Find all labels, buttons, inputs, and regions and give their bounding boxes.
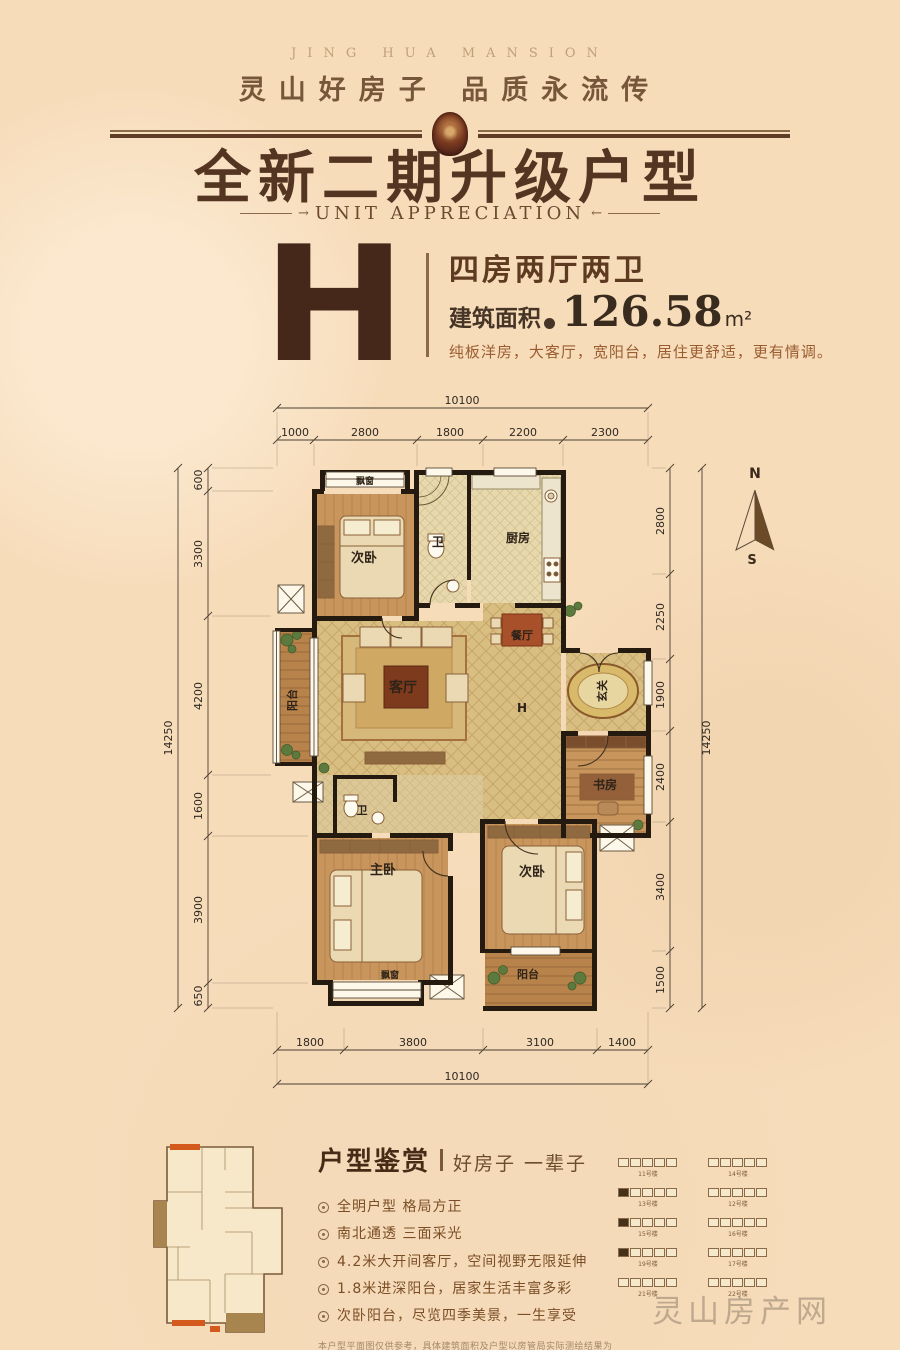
page-title: 全新二期升级户型 (0, 132, 900, 214)
label-bedroom-top: 次卧 (351, 550, 377, 566)
area-unit: m² (725, 307, 753, 331)
label-bay-bottom: 飘窗 (381, 969, 399, 981)
compass-icon: N S (736, 466, 774, 568)
dim-left-total: 14250 (162, 721, 175, 756)
label-bath-top: 卫 (432, 535, 444, 549)
area-label: 建筑面积 (449, 299, 541, 333)
svg-text:3900: 3900 (192, 896, 205, 924)
building-diagrams: 11号楼 14号楼 13号楼 12号楼 15号楼 16号楼 19号楼 17号楼 (606, 1158, 780, 1298)
unit-divider (426, 253, 429, 357)
building-item: 17号楼 (696, 1248, 780, 1268)
label-living: 客厅 (388, 679, 417, 696)
dim-top-total: 10100 (445, 394, 480, 407)
label-dining: 餐厅 (510, 628, 533, 642)
svg-text:3400: 3400 (654, 873, 667, 901)
svg-text:2800: 2800 (351, 426, 379, 439)
bullet-icon (318, 1257, 329, 1268)
disclaimer: 本户型平面图仅供参考，具体建筑面积及户型以房管局实际测绘结果为准。 (318, 1339, 618, 1350)
label-master: 主卧 (370, 862, 396, 878)
site-watermark: 灵山房产网 (652, 1286, 832, 1331)
svg-text:3800: 3800 (399, 1036, 427, 1049)
unit-area-row: 建筑面积 126.58 m² (449, 293, 833, 333)
label-bath-mid: 卫 (357, 804, 368, 817)
list-item: 次卧阳台，尽览四季美景，一生享受 (318, 1303, 618, 1330)
svg-text:1800: 1800 (436, 426, 464, 439)
unit-letter: H (262, 243, 407, 368)
label-balcony-bottom: 阳台 (517, 967, 539, 981)
svg-text:650: 650 (192, 986, 205, 1007)
bullet-icon (318, 1202, 329, 1213)
svg-text:3300: 3300 (192, 540, 205, 568)
label-bedroom-bottom: 次卧 (519, 864, 545, 880)
compass-south: S (747, 553, 756, 568)
label-bay-top: 飘窗 (356, 475, 374, 487)
svg-text:2250: 2250 (654, 603, 667, 631)
appreciation-block: 户型鉴赏 好房子 一辈子 全明户型 格局方正 南北通透 三面采光 4.2米大开间… (318, 1141, 618, 1350)
bullet-icon (318, 1229, 329, 1240)
label-foyer: 玄关 (595, 680, 609, 702)
svg-text:2800: 2800 (654, 507, 667, 535)
brand-slogan: 灵山好房子 品质永流传 (0, 68, 900, 107)
svg-text:1800: 1800 (296, 1036, 324, 1049)
poster: JING HUA MANSION 灵山好房子 品质永流传 全新二期升级户型 → … (0, 0, 900, 1350)
brand-english: JING HUA MANSION (0, 46, 900, 61)
unit-info-block: H 四房两厅两卫 建筑面积 126.58 m² 纯板洋房，大客厅，宽阳台，居住更… (262, 243, 833, 368)
svg-text:2200: 2200 (509, 426, 537, 439)
list-item: 南北通透 三面采光 (318, 1221, 618, 1248)
svg-text:1600: 1600 (192, 792, 205, 820)
svg-text:3100: 3100 (526, 1036, 554, 1049)
label-hall: H (517, 701, 527, 715)
building-item: 16号楼 (696, 1218, 780, 1238)
building-item: 19号楼 (606, 1248, 690, 1268)
building-item: 13号楼 (606, 1188, 690, 1208)
svg-text:1000: 1000 (281, 426, 309, 439)
svg-text:2400: 2400 (654, 763, 667, 791)
mini-floor-plan (148, 1140, 298, 1340)
area-value: 126.58 (562, 293, 723, 331)
dim-right-total: 14250 (700, 721, 713, 756)
arrow-left-icon: ← (591, 206, 602, 221)
subtitle-line-right (608, 213, 660, 214)
svg-text:1400: 1400 (608, 1036, 636, 1049)
svg-text:600: 600 (192, 470, 205, 491)
unit-type: 四房两厅两卫 (449, 245, 833, 289)
label-balcony-left: 阳台 (285, 689, 299, 711)
list-item: 1.8米进深阳台，居家生活丰富多彩 (318, 1276, 618, 1303)
list-item: 4.2米大开间客厅，空间视野无限延伸 (318, 1249, 618, 1276)
list-item: 全明户型 格局方正 (318, 1194, 618, 1221)
appreciation-list: 全明户型 格局方正 南北通透 三面采光 4.2米大开间客厅，空间视野无限延伸 1… (318, 1194, 618, 1330)
floor-plan: 飘窗 次卧 卫 厨房 餐厅 阳台 客厅 H 玄关 书房 卫 主卧 次卧 飘窗 阳… (150, 378, 800, 1108)
svg-text:2300: 2300 (591, 426, 619, 439)
bullet-icon (318, 1284, 329, 1295)
building-item: 11号楼 (606, 1158, 690, 1178)
building-item: 15号楼 (606, 1218, 690, 1238)
title-separator (440, 1149, 443, 1171)
appreciation-subtitle: 好房子 一辈子 (453, 1149, 587, 1176)
compass-north: N (749, 466, 761, 482)
svg-text:4200: 4200 (192, 682, 205, 710)
dim-bottom-total: 10100 (445, 1070, 480, 1083)
svg-text:1500: 1500 (654, 966, 667, 994)
label-kitchen: 厨房 (506, 530, 530, 545)
svg-text:1900: 1900 (654, 681, 667, 709)
appreciation-title: 户型鉴赏 (318, 1141, 430, 1178)
building-item: 12号楼 (696, 1188, 780, 1208)
building-item: 14号楼 (696, 1158, 780, 1178)
label-study: 书房 (593, 777, 617, 792)
area-dot-icon (544, 318, 555, 329)
bullet-icon (318, 1311, 329, 1322)
unit-tagline: 纯板洋房，大客厅，宽阳台，居住更舒适，更有情调。 (449, 341, 833, 362)
